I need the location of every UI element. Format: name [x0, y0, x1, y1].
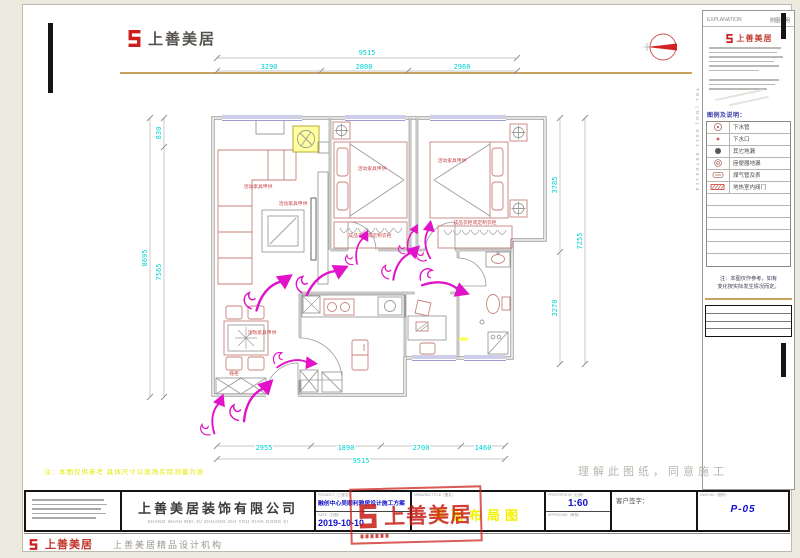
legend-row: 地热室内阀门 [707, 182, 790, 194]
legend-symbol-gas-meter-icon [707, 170, 730, 181]
scale-value: 1:60 [548, 498, 608, 509]
dimension-lines: 9515 3290 2800 2960 2955 1890 2700 1460 … [141, 49, 588, 465]
signature-box: 客户签字： [610, 492, 696, 530]
top-brand-text: 上善美居 [148, 28, 216, 49]
legend-symbol-drain-pipe-icon [707, 122, 730, 133]
footer-agency-text: 上善美居精品设计机构 [113, 538, 223, 551]
dim-top-seg3: 2960 [454, 63, 471, 71]
panel-header-cn: 附图说明 [770, 17, 790, 24]
legend-row: 煤气管及表 [707, 170, 790, 182]
dwg-label: DWG NO（图号） [698, 492, 788, 499]
understand-note: 理解此图纸，同意施工 [578, 463, 728, 479]
dim-bottom-seg2: 1890 [338, 444, 355, 452]
furniture-labels: 活动家具甲供 活动家具甲供 活动家具甲供 活动家具甲供 成品衣柜或定制衣柜 成品… [229, 157, 497, 377]
legend-title: 图例及说明： [707, 110, 794, 119]
binding-mark-right-mid [781, 343, 786, 377]
stamp-s-icon [356, 501, 381, 532]
scale-box: PROPORTION（比例） 1:60 APPROVED（审核） [544, 492, 610, 530]
legend-label: 座便器地漏 [730, 159, 761, 167]
legend-symbol-drain-outlet-icon [707, 134, 730, 145]
legend-label: 下水管 [730, 123, 750, 131]
legend-row: 下水口 [707, 134, 790, 146]
label-wardrobe2: 成品衣柜或定制衣柜 [453, 219, 496, 226]
binding-mark-left [48, 23, 53, 93]
exterior-walls [213, 118, 545, 395]
panel-header-en: EXPLANATION [707, 17, 742, 24]
panel-brand-text: 上善美居 [737, 33, 773, 44]
brand-s-icon-footer [28, 538, 39, 551]
signature-label: 客户签字： [616, 498, 649, 505]
label-bed2: 活动家具甲供 [438, 157, 467, 164]
page-number: P-05 [698, 504, 788, 515]
company-box: 上善美居装饰有限公司 SHANG SHAN WEI JU ZHUANG SHI … [120, 492, 314, 530]
dim-bottom-seg1: 2955 [256, 444, 273, 452]
page-number-box: DWG NO（图号） P-05 [696, 492, 788, 530]
panel-note: 注：本图仅作参考，如有 变化按实际发生情况而定。 [703, 275, 794, 293]
panel-note-line2: 变化按实际发生情况而定。 [703, 283, 794, 292]
yellow-marker [459, 337, 468, 341]
top-brand-logo: 上善美居 [126, 28, 216, 49]
legend-row-empty [707, 242, 790, 254]
dim-left-seg2: 7565 [155, 264, 163, 281]
company-pinyin: SHANG SHAN WEI JU ZHUANG SHI YOU XIAN GO… [122, 519, 314, 524]
label-sofa: 活动家具甲供 [244, 183, 273, 190]
dim-top-seg1: 3290 [261, 63, 278, 71]
furniture [216, 122, 527, 394]
flow-arrows [197, 218, 472, 438]
right-info-panel: EXPLANATION 附图说明 上善美居 图例及说明： 下水管 下水口 [702, 10, 795, 490]
dim-right-seg1: 3785 [551, 177, 559, 194]
dim-top-total: 9515 [359, 49, 376, 57]
panel-watermark2 [729, 95, 769, 105]
legend-row-empty [707, 194, 790, 206]
label-bed1: 活动家具甲供 [358, 165, 387, 172]
dim-left-seg1: 830 [155, 127, 163, 140]
footer-brand: 上善美居 上善美居精品设计机构 [28, 536, 223, 552]
legend-label: 煤气管及表 [730, 171, 761, 179]
footer-brand-text: 上善美居 [45, 536, 93, 552]
legend-label: 地热室内阀门 [730, 183, 766, 191]
dim-bottom-total: 9515 [353, 457, 370, 465]
legend-symbol-floor-drain-icon [707, 146, 730, 157]
label-wardrobe1: 成品衣柜或定制衣柜 [348, 232, 391, 239]
stamp-text: 上善美居 [384, 499, 473, 531]
title-block-notes-box [26, 492, 120, 530]
brand-s-icon-small [725, 33, 734, 44]
company-stamp: 上善美居 [349, 485, 482, 544]
approved-label: APPROVED（审核） [548, 513, 608, 518]
company-name: 上善美居装饰有限公司 [122, 498, 314, 517]
dim-bottom-seg4: 1460 [475, 444, 492, 452]
drawing-sheet: 上善美居 [0, 0, 800, 558]
binding-mark-right-top [781, 13, 786, 39]
legend-label: 其它地漏 [730, 147, 755, 155]
legend-row: 座便器地漏 [707, 158, 790, 170]
legend-row-empty [707, 230, 790, 242]
dim-top-seg2: 2800 [356, 63, 373, 71]
dim-right-total: 7255 [576, 233, 584, 250]
legend-row: 其它地漏 [707, 146, 790, 158]
brand-s-icon [126, 28, 143, 49]
label-dining: 活动家具甲供 [248, 329, 277, 336]
dim-left-total: 8695 [141, 250, 149, 267]
panel-revision-rows [705, 305, 792, 337]
legend-row-empty [707, 254, 790, 266]
legend-symbol-heating-valve-icon [707, 182, 730, 193]
stamp-dots [360, 534, 390, 539]
panel-note-line1: 注：本图仅作参考，如有 [703, 275, 794, 284]
panel-paragraph [703, 47, 794, 90]
dim-right-seg2: 3270 [551, 300, 559, 317]
legend-table: 下水管 下水口 其它地漏 座便器地漏 煤气管及表 地热室内阀门 [706, 121, 791, 267]
label-living: 活动家具甲供 [279, 200, 308, 207]
legend-symbol-toilet-drain-icon [707, 158, 730, 169]
interior-walls [256, 118, 512, 395]
label-shoe-cabinet: 鞋柜 [229, 370, 239, 377]
legend-row-empty [707, 206, 790, 218]
legend-label: 下水口 [730, 135, 750, 143]
north-arrow-icon [643, 34, 677, 60]
panel-tan-rule [705, 298, 792, 300]
dim-bottom-seg3: 2700 [413, 444, 430, 452]
panel-side-text: TEL（NO）0311 80704114 [690, 88, 700, 448]
yellow-note: 注：本图仅供参考 具体尺寸以现场实际测量为准 [44, 466, 204, 476]
legend-row-empty [707, 218, 790, 230]
legend-row: 下水管 [707, 122, 790, 134]
